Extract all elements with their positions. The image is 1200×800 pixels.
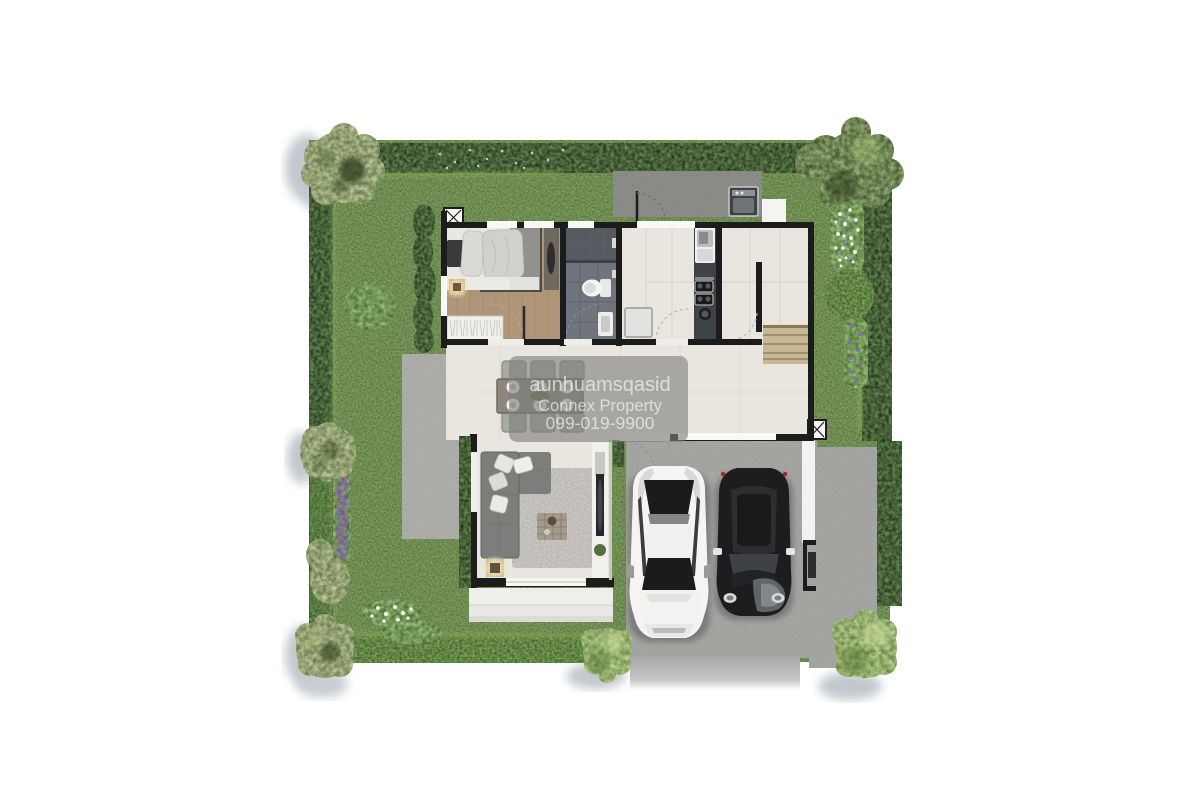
svg-text:099-019-9900: 099-019-9900 bbox=[546, 413, 655, 433]
svg-text:aunhuamsqasid: aunhuamsqasid bbox=[529, 374, 670, 396]
